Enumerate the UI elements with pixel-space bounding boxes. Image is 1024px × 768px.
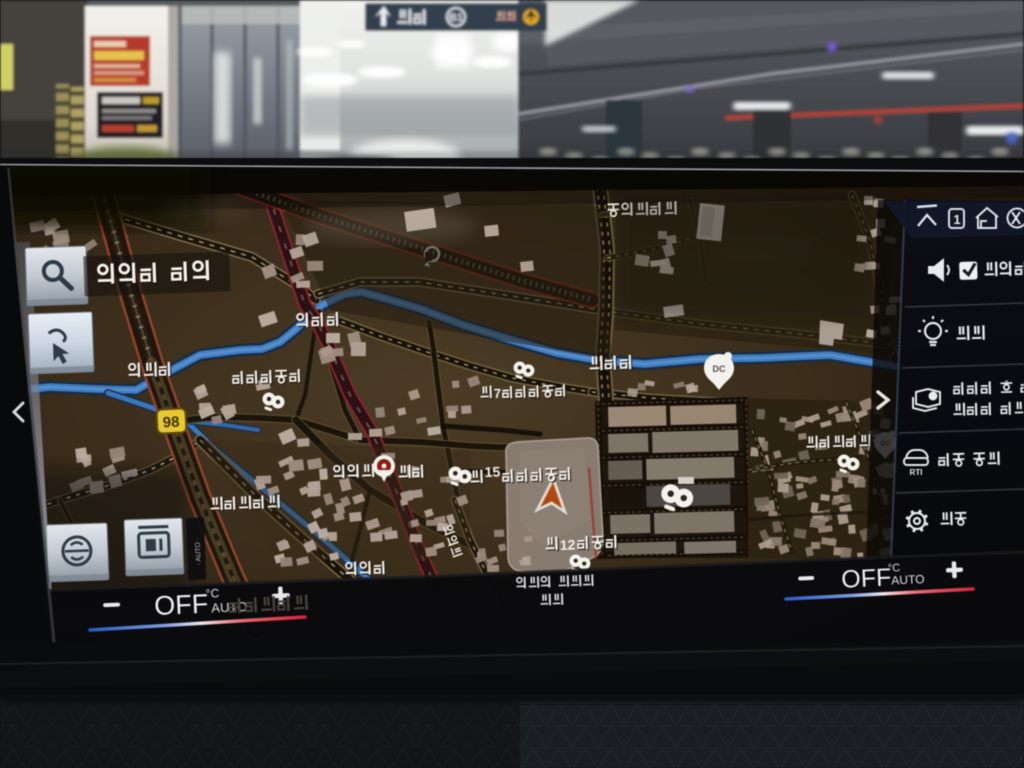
svg-text:OFF: OFF [841,564,892,594]
svg-text:RTI: RTI [910,468,923,477]
svg-text:B1: B1 [449,12,463,24]
svg-text:15: 15 [484,463,500,480]
svg-text:DC: DC [713,364,726,374]
svg-text:AUTO: AUTO [891,572,925,587]
svg-text:· AUTO ·: · AUTO · [195,538,203,566]
svg-text:7: 7 [494,386,502,401]
svg-text:98: 98 [162,414,180,432]
svg-text:1: 1 [953,212,960,227]
svg-text:OFF: OFF [154,589,209,621]
svg-text:°C: °C [205,586,219,601]
svg-text:12: 12 [560,536,576,553]
